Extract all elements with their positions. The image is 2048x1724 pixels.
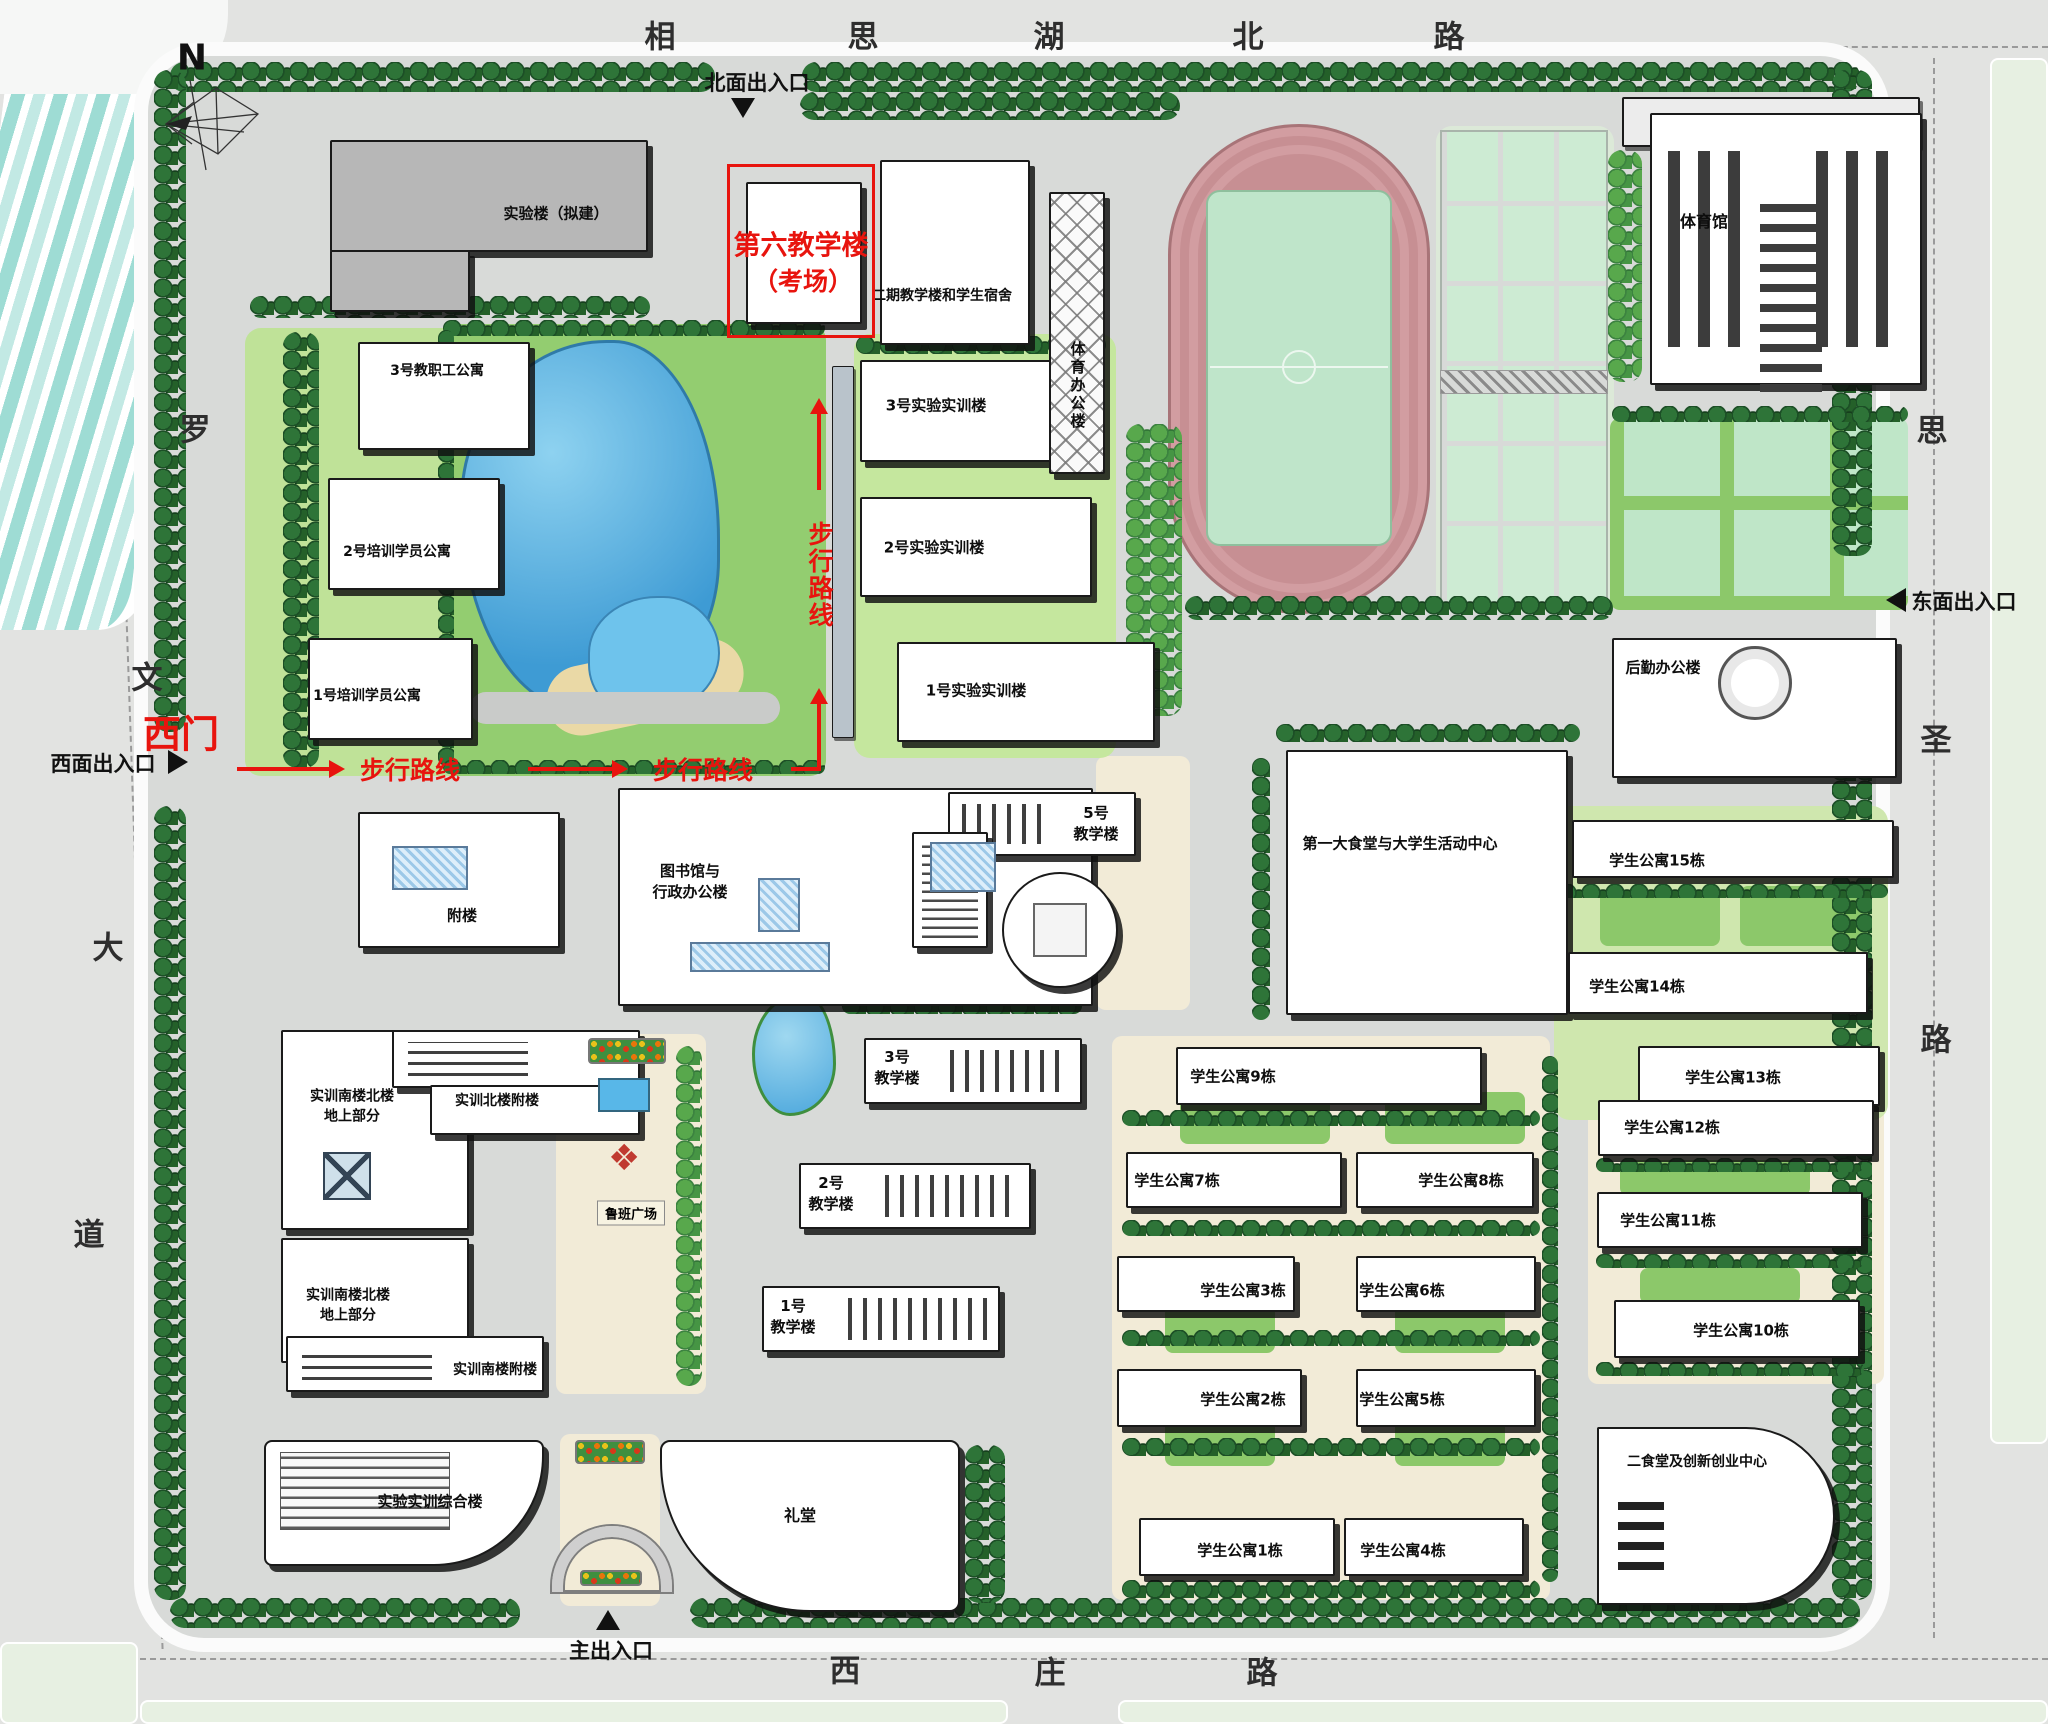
building-label-sx-complex: 实验实训综合楼 [377, 1492, 482, 1513]
road-left-char-3: 道 [74, 1210, 105, 1255]
building-label-library-admin: 图书馆与 行政办公楼 [652, 861, 727, 903]
building-label-teach-3: 3号 教学楼 [874, 1047, 919, 1089]
tree-row [676, 1046, 702, 1386]
road-centerline-east [1933, 58, 1935, 1638]
walk-route-line [817, 702, 821, 768]
building-label-apt-trainee-2: 2号培训学员公寓 [343, 543, 451, 563]
building-label-apt-3: 学生公寓3栋 [1200, 1281, 1285, 1302]
walk-route-arrow [329, 760, 345, 778]
walk-route-label-1: 步行路线 [653, 751, 753, 787]
walk-route-label-2: 步行路线 [801, 521, 837, 629]
tree-row [1608, 150, 1642, 382]
building-label-apt-9: 学生公寓9栋 [1190, 1067, 1275, 1088]
tree-row [1122, 1580, 1540, 1598]
road-left-char-1: 文 [132, 653, 163, 698]
building-label-apt-14: 学生公寓14栋 [1589, 977, 1685, 998]
courtyard [1640, 1268, 1800, 1304]
tree-row [1558, 884, 1888, 898]
tree-row [1612, 406, 1908, 422]
building-label-canteen-2: 二食堂及创新创业中心 [1627, 1453, 1767, 1473]
tree-row [1542, 1056, 1558, 1582]
walk-route-line [237, 767, 329, 771]
walk-route-arrow [810, 398, 828, 414]
walk-route-line [528, 767, 612, 771]
tree-row [1596, 1158, 1864, 1172]
building-label-sx-south-annex: 实训南楼附楼 [453, 1361, 537, 1381]
atrium-skylight [323, 1152, 371, 1200]
tree-row [1122, 1110, 1540, 1126]
building-label-teach-5: 5号 教学楼 [1073, 803, 1118, 845]
entrance-label-main: 主出入口 [569, 1635, 653, 1665]
building-label-apt-15: 学生公寓15栋 [1609, 851, 1705, 872]
building-label-apt-trainee-1: 1号培训学员公寓 [313, 687, 421, 707]
building-label-apt-7: 学生公寓7栋 [1134, 1171, 1219, 1192]
entrance-label-west: 西面出入口 [51, 748, 156, 778]
building-label-apt-13: 学生公寓13栋 [1685, 1068, 1781, 1089]
exam-building-label: 第六教学楼 [734, 224, 869, 263]
road-bottom-char-2: 路 [1247, 1648, 1278, 1693]
tree-row [1276, 724, 1580, 742]
tree-row [443, 760, 825, 774]
building-label-sx-south-tower: 实训南楼北楼 地上部分 [306, 1286, 390, 1325]
entrance-arrow-north [731, 98, 755, 118]
exam-room-label: （考场） [753, 262, 853, 298]
south-field-left [140, 1700, 1008, 1724]
building-label-logistics-office: 后勤办公楼 [1625, 658, 1700, 679]
road-bottom-char-1: 庄 [1035, 1648, 1066, 1693]
building-label-apt-11: 学生公寓11栋 [1620, 1211, 1716, 1232]
entrance-arrow-main [596, 1610, 620, 1630]
tree-row [802, 62, 1860, 92]
building-label-apt-staff-3: 3号教职工公寓 [390, 362, 484, 382]
skylight [930, 842, 996, 892]
tree-row [1252, 758, 1270, 1020]
walkway-hatch [1440, 370, 1608, 394]
field-center-circle [1282, 350, 1316, 384]
southwest-field [0, 1642, 138, 1724]
road-right-char-2: 路 [1921, 1015, 1952, 1060]
canteen2-roof-bars [1618, 1490, 1664, 1570]
road-top-char-1: 思 [848, 12, 879, 57]
building-label-auditorium: 礼堂 [784, 1505, 816, 1527]
road-top-char-4: 路 [1434, 12, 1465, 57]
entrance-label-east: 东面出入口 [1912, 586, 2017, 616]
building-label-apt-5: 学生公寓5栋 [1359, 1390, 1444, 1411]
road-centerline-north [150, 46, 2048, 48]
skylight [758, 878, 800, 932]
building-label-sx-north-annex: 实训北楼附楼 [455, 1092, 539, 1112]
building-canteen-1 [1286, 750, 1568, 1015]
skylight [690, 942, 830, 972]
building-label-sx-north-tower: 实训南楼北楼 地上部分 [310, 1087, 394, 1126]
building-label-apt-8: 学生公寓8栋 [1418, 1171, 1503, 1192]
south-field-right [1118, 1700, 2048, 1724]
tree-row [170, 1598, 520, 1628]
courtyard [1600, 890, 1720, 946]
basketball-courts [1440, 130, 1608, 608]
tree-row [1122, 1220, 1540, 1236]
walk-route-label-0: 步行路线 [360, 751, 460, 787]
building-label-apt-12: 学生公寓12栋 [1624, 1118, 1720, 1139]
building-label-canteen-1: 第一大食堂与大学生活动中心 [1302, 834, 1497, 855]
tree-row [800, 92, 1180, 120]
building-label-apt-2: 学生公寓2栋 [1200, 1390, 1285, 1411]
campus-map: ❖ N 鲁班广场 西门 第六教学楼 （考场） 相思湖北路罗文大道思圣路西庄路北面… [0, 0, 2048, 1724]
road-top-char-0: 相 [645, 12, 676, 57]
building-label-apt-4: 学生公寓4栋 [1360, 1541, 1445, 1562]
walk-route-arrow [612, 760, 628, 778]
building-label-shixun-3: 3号实验实训楼 [886, 396, 986, 417]
compass-rose-icon [148, 72, 268, 182]
building-lab-proposed [330, 140, 648, 252]
luban-logo-icon: ❖ [608, 1138, 640, 1179]
walk-route-arrow [810, 688, 828, 704]
building-sports-office [1049, 192, 1105, 474]
road-left-char-0: 罗 [180, 405, 211, 450]
building-apt-trainee-2 [328, 478, 500, 590]
tree-row [1122, 1330, 1540, 1346]
road-right-char-0: 思 [1917, 406, 1948, 451]
park-walkway [470, 692, 780, 724]
building-label-phase2-dorm: 二期教学楼和学生宿舍 [872, 287, 1012, 307]
road-top-char-3: 北 [1233, 12, 1264, 57]
building-label-teach-2: 2号 教学楼 [808, 1173, 853, 1215]
building-label-gym: 体育馆 [1680, 211, 1728, 233]
building-label-sports-office: 体育办公楼 [1067, 341, 1088, 431]
walk-route-line [817, 412, 821, 490]
tree-row [1596, 1362, 1864, 1376]
flowerbed [588, 1038, 666, 1064]
tree-row [154, 806, 186, 1600]
luban-square-label: 鲁班广场 [597, 1201, 665, 1226]
flowerbed [575, 1440, 645, 1464]
west-gate-label: 西门 [143, 704, 219, 759]
building-label-apt-6: 学生公寓6栋 [1359, 1281, 1444, 1302]
building-label-teach-1: 1号 教学楼 [770, 1296, 815, 1338]
road-centerline-south [140, 1658, 2048, 1660]
tree-row [1185, 596, 1613, 620]
building-apt-staff-3 [358, 342, 530, 450]
road-top-char-2: 湖 [1034, 12, 1065, 57]
entrance-arrow-east [1886, 588, 1906, 612]
building-label-annex: 附楼 [447, 906, 477, 927]
road-left-char-2: 大 [93, 923, 124, 968]
building-lab-proposed-wing [330, 250, 470, 312]
tree-row [965, 1445, 1005, 1603]
building-label-shixun-1: 1号实验实训楼 [926, 681, 1026, 702]
gym-roof-bars [1760, 196, 1822, 392]
building-phase2-dorm [880, 160, 1030, 345]
road-right-char-1: 圣 [1921, 715, 1952, 760]
plaza-fountain [598, 1078, 650, 1112]
building-label-apt-10: 学生公寓10栋 [1693, 1321, 1789, 1342]
building-round-hall [1002, 872, 1118, 988]
east-field [1990, 58, 2048, 1444]
building-label-shixun-2: 2号实验实训楼 [884, 538, 984, 559]
spiral-ramp [1718, 646, 1792, 720]
building-label-lab-proposed: 实验楼（拟建） [503, 204, 608, 225]
building-label-apt-1: 学生公寓1栋 [1197, 1541, 1282, 1562]
tree-row [1122, 1438, 1540, 1456]
road-bottom-char-0: 西 [830, 1646, 861, 1691]
tree-row [1596, 1254, 1864, 1268]
skylight [392, 846, 468, 890]
entrance-label-north: 北面出入口 [705, 67, 810, 97]
